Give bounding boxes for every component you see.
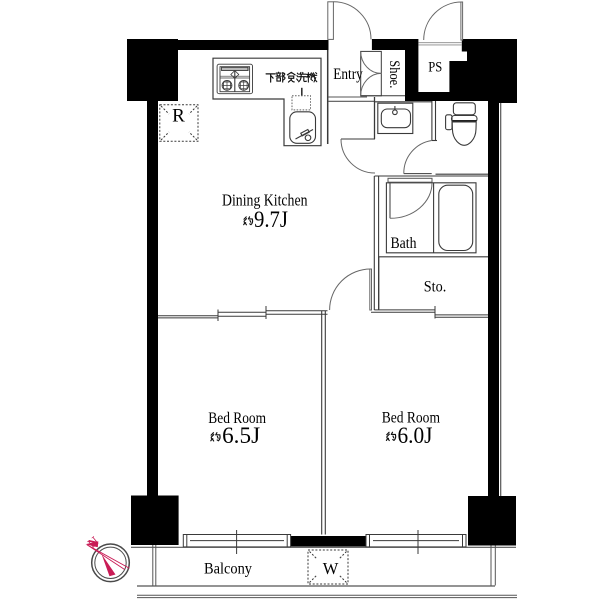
svg-text:R: R: [172, 106, 185, 127]
svg-text:W: W: [323, 559, 339, 578]
svg-text:9.7J: 9.7J: [254, 207, 288, 233]
svg-text:PS: PS: [428, 60, 442, 76]
svg-text:6.0J: 6.0J: [398, 423, 433, 449]
svg-text:Entry: Entry: [333, 66, 363, 83]
svg-text:6.5J: 6.5J: [222, 423, 260, 449]
svg-text:Shoe.: Shoe.: [386, 60, 402, 88]
svg-text:Balcony: Balcony: [204, 560, 252, 577]
svg-text:Bath: Bath: [391, 235, 417, 252]
svg-text:Sto.: Sto.: [424, 278, 447, 295]
